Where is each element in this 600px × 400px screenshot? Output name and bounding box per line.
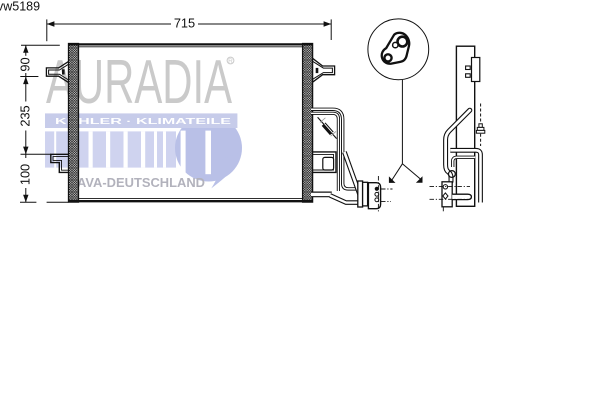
svg-text:KÜHLER · KLIMATEILE: KÜHLER · KLIMATEILE <box>55 117 231 126</box>
svg-text:100: 100 <box>18 164 33 185</box>
svg-text:AVA-DEUTSCHLAND: AVA-DEUTSCHLAND <box>77 176 205 190</box>
svg-text:715: 715 <box>174 16 195 31</box>
svg-text:vw5189: vw5189 <box>0 0 40 14</box>
svg-text:R: R <box>228 58 233 65</box>
svg-text:235: 235 <box>18 105 33 126</box>
svg-text:90: 90 <box>18 57 33 71</box>
